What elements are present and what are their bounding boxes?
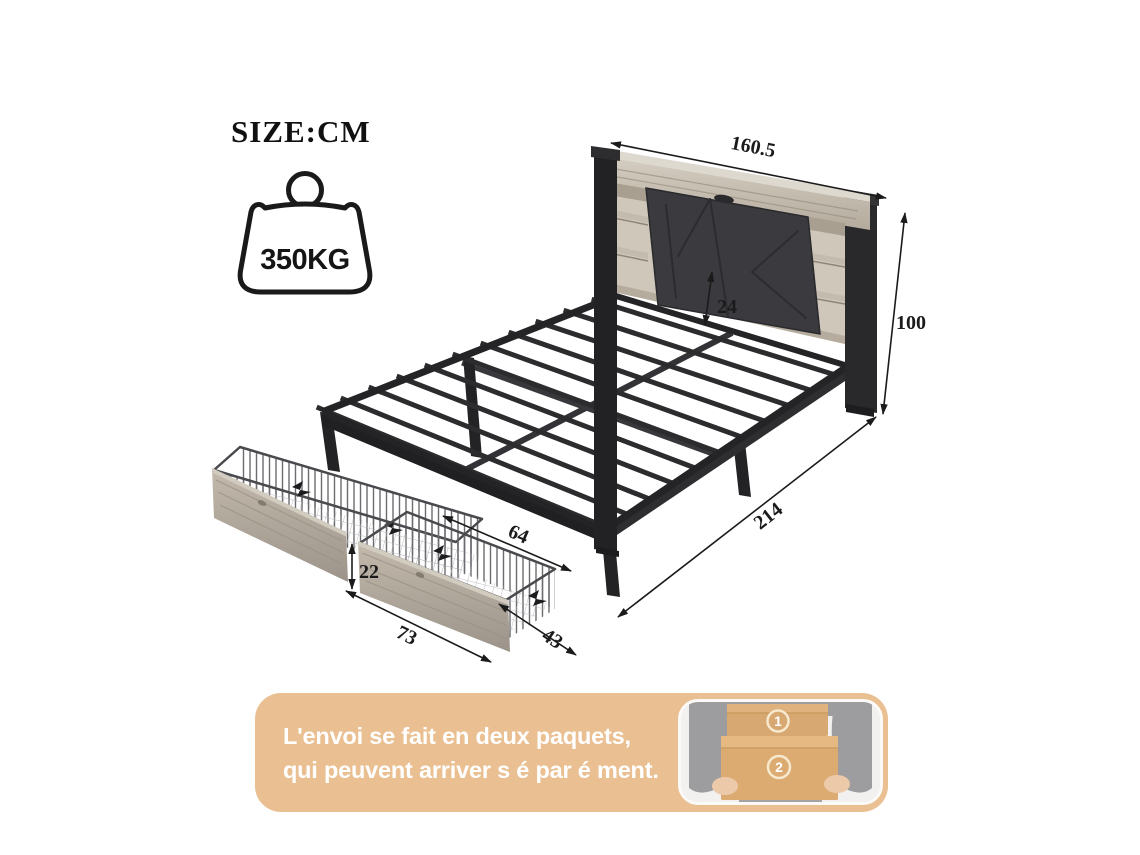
dimension-label: 43 — [538, 624, 567, 653]
shipping-banner-text: L'envoi se fait en deux paquets, qui peu… — [283, 693, 659, 812]
package-2-box: 2 — [721, 736, 838, 800]
package-1-number: 1 — [774, 713, 782, 729]
weight-capacity-label: 350KG — [260, 244, 349, 276]
package-1-box: 1 — [727, 704, 828, 736]
dimension-label: 24 — [717, 296, 737, 318]
product-dimension-diagram: SIZE:CM 350KG — [0, 0, 1140, 855]
headboard-left-post — [594, 149, 617, 553]
storage-drawers-illustration — [212, 447, 555, 652]
dimension-total-height: 100 — [883, 213, 926, 414]
dimension-label: 214 — [750, 498, 787, 534]
dimension-label: 22 — [359, 561, 379, 583]
right-hand — [824, 775, 850, 793]
cross-beam — [462, 363, 721, 457]
size-unit-label: SIZE:CM — [231, 114, 371, 149]
weight-capacity-icon: 350KG — [240, 174, 370, 293]
shipping-banner: L'envoi se fait en deux paquets, qui peu… — [255, 693, 888, 812]
shipping-line-2: qui peuvent arriver s é par é ment. — [283, 755, 659, 785]
left-hand — [712, 777, 738, 795]
dimension-label: 100 — [896, 312, 926, 334]
dimension-label: 160.5 — [729, 132, 777, 162]
size-unit-heading: SIZE:CM — [231, 114, 371, 149]
shipping-line-1: L'envoi se fait en deux paquets, — [283, 721, 659, 751]
shipping-photo: 1 2 — [678, 699, 883, 805]
package-2-number: 2 — [775, 759, 783, 775]
two-packages-illustration: 1 2 — [681, 702, 880, 802]
